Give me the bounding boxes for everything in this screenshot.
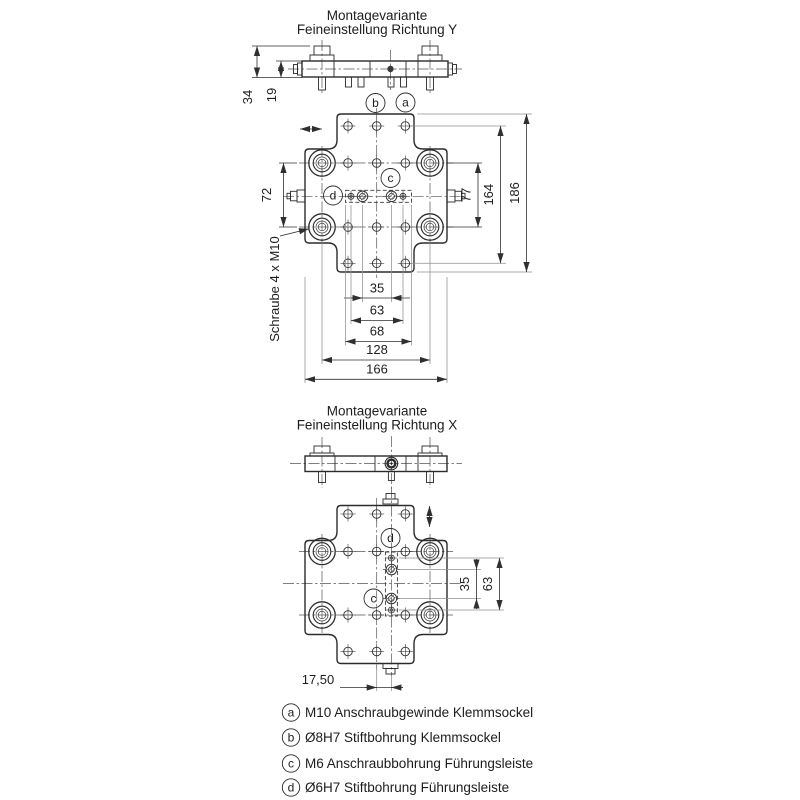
- grid-hole: [341, 644, 356, 659]
- grid-hole: [398, 507, 413, 522]
- pin-stud: [346, 77, 352, 87]
- balloon-b-letter: b: [372, 96, 379, 110]
- rail-end-screw: [386, 605, 397, 616]
- balloon-c-letter: c: [371, 592, 377, 606]
- dim-128: 128: [366, 342, 388, 357]
- dim-77: 77: [459, 188, 474, 202]
- grid-hole: [369, 220, 384, 235]
- bottom-tab-screw-cap: [386, 669, 395, 675]
- balloon-d-letter: d: [330, 189, 337, 203]
- view-y-side-view: 34 19 b a: [240, 40, 462, 113]
- grid-hole: [369, 156, 384, 171]
- pin-stud: [358, 77, 364, 87]
- legend-key-c: c: [288, 757, 294, 771]
- dim-19: 19: [264, 88, 279, 102]
- grid-hole: [341, 119, 356, 134]
- dim-17-50: 17,50: [302, 672, 335, 687]
- adjust-screw-center: [390, 462, 392, 464]
- dim-63: 63: [480, 577, 495, 591]
- plate-outline: [305, 114, 447, 272]
- legend-item-b: b Ø8H7 Stiftbohrung Klemmsockel: [282, 729, 501, 746]
- view-x-title: Montagevariante Feineinstellung Richtung…: [297, 404, 458, 433]
- legend-item-d: d Ø6H7 Stiftbohrung Führungsleiste: [282, 779, 509, 796]
- top-tab-screw-cap: [386, 494, 395, 500]
- legend-text-d: Ø6H7 Stiftbohrung Führungsleiste: [305, 780, 509, 795]
- dim-166: 166: [366, 361, 388, 376]
- grid-hole: [369, 608, 384, 623]
- dim-186: 186: [507, 182, 522, 204]
- dim-68: 68: [370, 324, 384, 339]
- balloon-a-letter: a: [402, 96, 409, 110]
- view-y-title-line2: Feineinstellung Richtung Y: [297, 22, 457, 37]
- drawing-canvas: Montagevariante Feineinstellung Richtung…: [0, 0, 800, 800]
- legend: a M10 Anschraubgewinde Klemmsockel b Ø8H…: [282, 704, 533, 796]
- rail-end-screw: [386, 553, 397, 564]
- grid-hole: [369, 256, 384, 271]
- legend-text-c: M6 Anschraubbohrung Führungsleiste: [305, 756, 533, 771]
- grid-hole: [398, 544, 413, 559]
- technical-drawing-page: Montagevariante Feineinstellung Richtung…: [0, 0, 800, 800]
- grid-hole: [369, 119, 384, 134]
- plate-outline: [305, 506, 447, 664]
- grid-hole: [369, 544, 384, 559]
- grid-hole: [398, 119, 413, 134]
- view-y-plan-view: c d Schraube 4 x M10 72 77 164 186 35: [259, 108, 532, 383]
- grid-hole: [341, 156, 356, 171]
- view-x-side-view: [290, 436, 462, 492]
- grid-hole: [341, 544, 356, 559]
- legend-text-a: M10 Anschraubgewinde Klemmsockel: [305, 705, 533, 720]
- dim-72: 72: [259, 188, 274, 202]
- legend-key-a: a: [288, 706, 295, 720]
- dim-35: 35: [457, 577, 472, 591]
- dim-34: 34: [240, 90, 255, 104]
- grid-hole: [398, 220, 413, 235]
- top-tab-screw-flange: [383, 499, 398, 504]
- grid-hole: [369, 644, 384, 659]
- grid-hole: [341, 256, 356, 271]
- pin-stud: [401, 77, 407, 87]
- bottom-tab-screw-flange: [383, 664, 398, 669]
- grid-hole: [398, 156, 413, 171]
- grid-hole: [398, 256, 413, 271]
- dim-63: 63: [370, 303, 384, 318]
- grid-hole: [341, 507, 356, 522]
- balloon-d-letter: d: [387, 531, 394, 545]
- center-screw-dot: [387, 66, 393, 72]
- view-x-title-line2: Feineinstellung Richtung X: [297, 418, 458, 433]
- view-y-title-line1: Montagevariante: [327, 8, 428, 23]
- dim-164: 164: [481, 184, 496, 206]
- grid-hole: [341, 220, 356, 235]
- screw-note: Schraube 4 x M10: [267, 236, 282, 342]
- view-x-plan-view: d c 35 63 17,50: [283, 487, 504, 691]
- grid-hole: [398, 644, 413, 659]
- legend-item-c: c M6 Anschraubbohrung Führungsleiste: [282, 755, 533, 772]
- legend-item-a: a M10 Anschraubgewinde Klemmsockel: [282, 704, 533, 721]
- view-x-title-line1: Montagevariante: [327, 404, 428, 419]
- dim-35: 35: [370, 281, 384, 296]
- pin-stud: [388, 77, 394, 87]
- view-y-title: Montagevariante Feineinstellung Richtung…: [297, 8, 457, 37]
- legend-text-b: Ø8H7 Stiftbohrung Klemmsockel: [305, 730, 501, 745]
- grid-hole: [341, 608, 356, 623]
- balloon-c-letter: c: [388, 171, 394, 185]
- legend-key-d: d: [288, 781, 295, 795]
- grid-hole: [369, 507, 384, 522]
- legend-key-b: b: [288, 731, 295, 745]
